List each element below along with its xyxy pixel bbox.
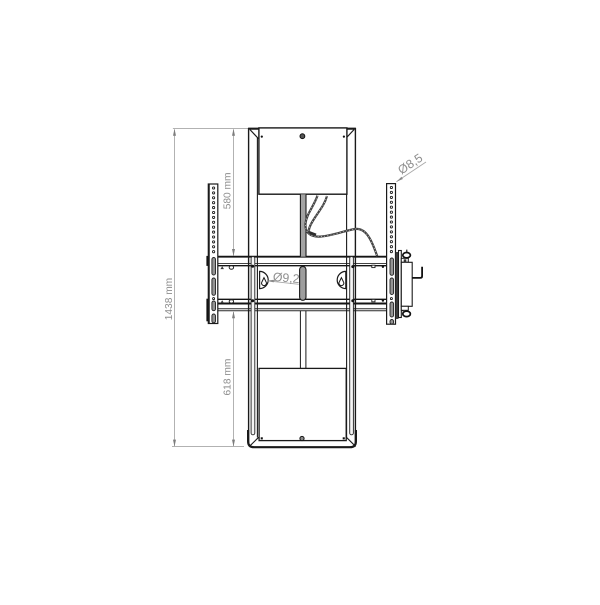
svg-text:1438 mm: 1438 mm	[164, 278, 175, 320]
svg-text:618 mm: 618 mm	[222, 359, 233, 396]
svg-text:580 mm: 580 mm	[222, 172, 233, 209]
svg-text:Ø9,2: Ø9,2	[272, 270, 300, 286]
